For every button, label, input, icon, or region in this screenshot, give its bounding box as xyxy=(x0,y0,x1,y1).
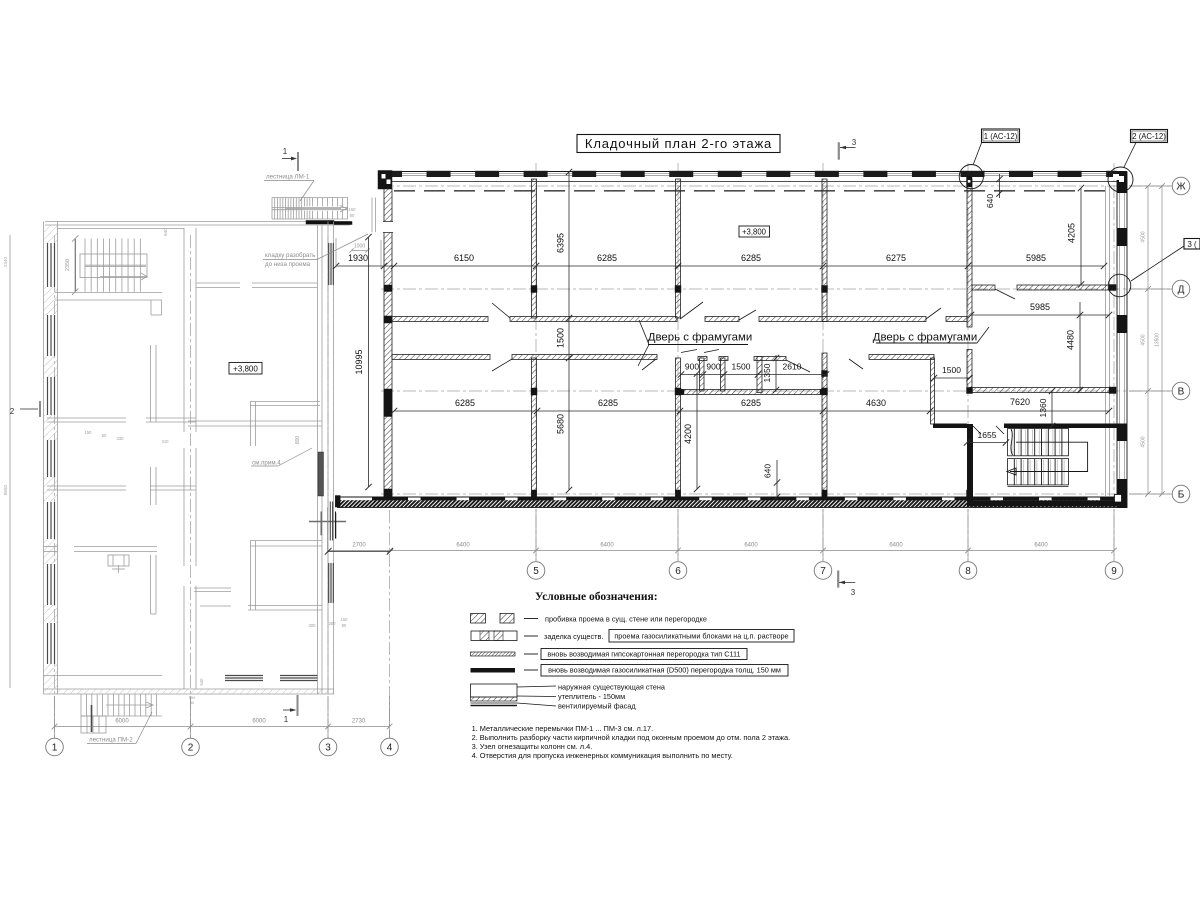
svg-text:6400: 6400 xyxy=(600,543,614,549)
svg-text:Д: Д xyxy=(1178,285,1185,296)
svg-text:800: 800 xyxy=(295,436,301,445)
svg-text:80: 80 xyxy=(342,623,347,628)
svg-text:2350: 2350 xyxy=(65,259,71,271)
svg-text:лестница ПМ-2: лестница ПМ-2 xyxy=(89,737,133,744)
svg-text:кладку разобрать: кладку разобрать xyxy=(265,252,315,259)
svg-text:150: 150 xyxy=(85,430,93,435)
svg-text:900: 900 xyxy=(685,362,699,372)
svg-text:6285: 6285 xyxy=(455,398,475,408)
svg-text:310: 310 xyxy=(162,439,170,444)
svg-text:Дверь с фрамугами: Дверь с фрамугами xyxy=(873,332,977,344)
svg-text:1500: 1500 xyxy=(732,362,751,372)
svg-text:1: 1 xyxy=(284,715,289,724)
svg-text:3 (: 3 ( xyxy=(1187,240,1197,249)
svg-text:вновь возводимая гипсокартонна: вновь возводимая гипсокартонная перегоро… xyxy=(547,650,740,659)
svg-text:6000: 6000 xyxy=(115,719,129,725)
svg-text:640: 640 xyxy=(199,678,204,686)
svg-text:5985: 5985 xyxy=(1026,253,1046,263)
svg-text:300: 300 xyxy=(309,623,317,628)
svg-text:4500: 4500 xyxy=(1141,231,1147,242)
svg-text:1: 1 xyxy=(52,743,58,754)
svg-text:2. Выполнить разборку части ки: 2. Выполнить разборку части кирпичной кл… xyxy=(472,733,791,742)
svg-text:13500: 13500 xyxy=(1155,333,1161,347)
svg-text:4200: 4200 xyxy=(683,424,693,444)
svg-text:1. Металлические перемычки П: 1. Металлические перемычки ПМ-1 ... ПМ-3… xyxy=(472,724,654,733)
svg-text:6: 6 xyxy=(675,566,681,577)
svg-text:3: 3 xyxy=(852,138,857,147)
svg-text:8680: 8680 xyxy=(3,484,8,495)
svg-text:6275: 6275 xyxy=(886,253,906,263)
svg-text:4. Отверстия для пропуска инже: 4. Отверстия для пропуска инженерных ком… xyxy=(472,751,733,760)
svg-text:6395: 6395 xyxy=(556,233,566,253)
svg-text:Б: Б xyxy=(1178,490,1185,501)
svg-text:8: 8 xyxy=(965,566,971,577)
svg-text:7: 7 xyxy=(820,566,826,577)
svg-text:6150: 6150 xyxy=(454,253,474,263)
svg-text:4205: 4205 xyxy=(1067,223,1077,243)
svg-text:Дверь с фрамугами: Дверь с фрамугами xyxy=(648,332,752,344)
svg-text:150: 150 xyxy=(349,207,357,212)
svg-text:1360: 1360 xyxy=(1038,398,1048,417)
svg-text:5985: 5985 xyxy=(1030,302,1050,312)
svg-text:проема газосиликатными блоками: проема газосиликатными блоками на ц.п. р… xyxy=(614,632,788,641)
svg-text:3. Узел огнезащиты колонн см.: 3. Узел огнезащиты колонн см. л.4. xyxy=(472,742,593,751)
svg-text:300: 300 xyxy=(329,621,337,626)
svg-text:900: 900 xyxy=(706,362,720,372)
svg-text:2610: 2610 xyxy=(783,362,802,372)
svg-text:В: В xyxy=(1178,387,1185,398)
svg-text:наружная существующая стена: наружная существующая стена xyxy=(558,683,666,692)
svg-text:+3,800: +3,800 xyxy=(742,228,767,237)
svg-text:см.прим.4: см.прим.4 xyxy=(252,460,281,467)
svg-text:10995: 10995 xyxy=(354,349,364,374)
svg-text:6285: 6285 xyxy=(598,398,618,408)
svg-text:1500: 1500 xyxy=(556,328,566,348)
svg-text:4630: 4630 xyxy=(866,398,886,408)
svg-text:1930: 1930 xyxy=(348,253,368,263)
svg-text:4: 4 xyxy=(387,743,393,754)
svg-text:1 (АС-12): 1 (АС-12) xyxy=(984,132,1018,141)
svg-text:+3,800: +3,800 xyxy=(233,364,258,373)
svg-text:5: 5 xyxy=(533,566,539,577)
svg-text:1000: 1000 xyxy=(354,244,366,250)
svg-text:Ж: Ж xyxy=(1176,182,1186,193)
svg-text:6400: 6400 xyxy=(1034,543,1048,549)
svg-text:вентилируемый фасад: вентилируемый фасад xyxy=(558,702,636,711)
svg-text:4500: 4500 xyxy=(1141,436,1147,447)
svg-text:6000: 6000 xyxy=(252,719,266,725)
svg-text:Условные обозначения:: Условные обозначения: xyxy=(535,591,658,603)
svg-text:2730: 2730 xyxy=(352,719,366,725)
svg-text:6400: 6400 xyxy=(889,543,903,549)
svg-text:6285: 6285 xyxy=(597,253,617,263)
svg-text:2 (АС-12): 2 (АС-12) xyxy=(1132,132,1166,141)
svg-text:640: 640 xyxy=(163,228,168,236)
svg-text:2700: 2700 xyxy=(352,543,366,549)
svg-text:пробивка проема в сущ. стене: пробивка проема в сущ. стене или перегор… xyxy=(545,615,707,624)
svg-text:640: 640 xyxy=(763,464,773,478)
svg-text:80: 80 xyxy=(102,433,107,438)
svg-text:1655: 1655 xyxy=(978,430,997,440)
svg-text:80: 80 xyxy=(350,213,355,218)
svg-text:2: 2 xyxy=(188,743,194,754)
svg-text:4500: 4500 xyxy=(1141,334,1147,345)
svg-text:заделка существ.: заделка существ. xyxy=(544,632,603,641)
svg-text:до низа проема: до низа проема xyxy=(265,261,311,268)
svg-text:2340: 2340 xyxy=(3,256,8,267)
svg-text:1: 1 xyxy=(283,147,288,156)
svg-text:1350: 1350 xyxy=(762,363,772,382)
svg-text:150: 150 xyxy=(341,617,349,622)
svg-text:вновь возводимая газосиликатна: вновь возводимая газосиликатная (D500) п… xyxy=(548,666,781,675)
svg-text:3: 3 xyxy=(851,588,856,597)
svg-text:9: 9 xyxy=(1111,566,1117,577)
svg-text:6285: 6285 xyxy=(741,253,761,263)
svg-text:330: 330 xyxy=(117,436,125,441)
svg-text:Кладочный план 2-го этажа: Кладочный план 2-го этажа xyxy=(585,136,772,151)
svg-text:7620: 7620 xyxy=(1010,397,1030,407)
svg-text:2: 2 xyxy=(10,407,15,416)
svg-text:1500: 1500 xyxy=(942,365,961,375)
svg-text:3: 3 xyxy=(325,743,331,754)
svg-text:6400: 6400 xyxy=(744,543,758,549)
svg-text:5680: 5680 xyxy=(556,414,566,434)
svg-text:4480: 4480 xyxy=(1066,330,1076,350)
svg-text:утеплитель - 150мм: утеплитель - 150мм xyxy=(558,692,625,701)
svg-text:6285: 6285 xyxy=(741,398,761,408)
svg-text:6400: 6400 xyxy=(456,543,470,549)
svg-text:лестница ЛМ-1: лестница ЛМ-1 xyxy=(266,174,310,181)
svg-text:640: 640 xyxy=(985,194,995,208)
